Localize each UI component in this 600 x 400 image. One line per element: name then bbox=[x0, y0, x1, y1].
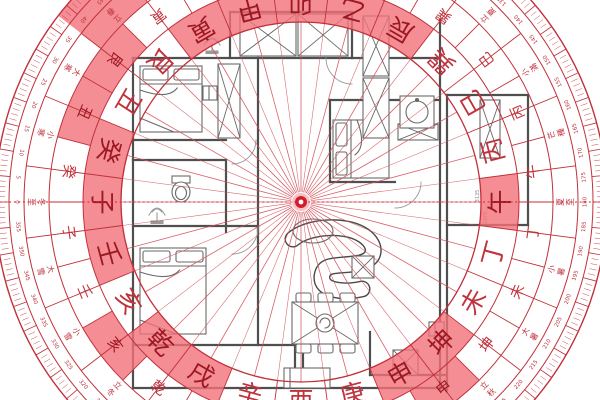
mountain-丁: 丁 bbox=[476, 238, 510, 270]
degree-label: 205 bbox=[554, 316, 564, 329]
degree-label: 340 bbox=[29, 293, 38, 305]
degree-label: 150 bbox=[542, 53, 553, 66]
mid-mountain-丙: 丙 bbox=[508, 102, 528, 122]
side-table bbox=[352, 256, 374, 278]
degree-label: 15 bbox=[22, 124, 30, 133]
degree-label: 200 bbox=[564, 293, 573, 305]
mid-mountain-巽: 巽 bbox=[433, 5, 454, 27]
mid-mountain-壬: 壬 bbox=[74, 282, 95, 302]
mountain-辛: 辛 bbox=[234, 377, 266, 400]
mid-mountain-癸: 癸 bbox=[59, 163, 78, 180]
solar-term-芒種: 芒 bbox=[545, 130, 557, 140]
door-swing bbox=[395, 182, 421, 208]
solar-term-小寒: 寒 bbox=[35, 127, 47, 137]
mountain-酉: 酉 bbox=[288, 387, 313, 400]
kitchen-sink bbox=[400, 96, 434, 128]
dining-table bbox=[292, 293, 358, 353]
mountain-庚: 庚 bbox=[337, 377, 369, 400]
degree-label: 145 bbox=[528, 32, 539, 44]
degree-label: 185 bbox=[581, 221, 588, 232]
shaft bbox=[363, 78, 389, 138]
degree-label: 330 bbox=[49, 338, 60, 351]
mountain-未: 未 bbox=[455, 283, 493, 319]
degree-label: 25 bbox=[39, 77, 48, 86]
mountain-卯: 卯 bbox=[288, 0, 313, 18]
degree-label: 210 bbox=[542, 338, 553, 351]
wardrobe bbox=[218, 64, 240, 138]
degree-label: 20 bbox=[29, 100, 37, 109]
mid-mountain-午: 午 bbox=[524, 163, 543, 180]
nightstand bbox=[203, 86, 217, 100]
door-swing bbox=[232, 228, 258, 254]
mountain-午: 午 bbox=[486, 189, 515, 214]
mid-mountain-子: 子 bbox=[59, 224, 78, 241]
degree-label: 220 bbox=[513, 379, 525, 391]
degree-label: 10 bbox=[17, 149, 24, 157]
degree-label: 30 bbox=[50, 55, 59, 64]
luopan-over-floorplan-diagram: 3135197505101520253035404550556065707580… bbox=[0, 0, 600, 400]
degree-label: 35 bbox=[63, 34, 72, 44]
mid-mountain-巳: 巳 bbox=[477, 48, 499, 69]
degree-label: 155 bbox=[554, 75, 564, 88]
degree-label: 135 bbox=[496, 0, 508, 7]
solar-term-芒種: 種 bbox=[555, 127, 567, 137]
degree-label: 140 bbox=[513, 13, 525, 25]
mid-mountain-寅: 寅 bbox=[147, 5, 169, 27]
degree-label: 325 bbox=[62, 359, 73, 371]
mid-mountain-未: 未 bbox=[507, 282, 528, 302]
toilet bbox=[172, 176, 190, 202]
degree-label: 5 bbox=[14, 175, 20, 180]
degree-label: 320 bbox=[77, 379, 89, 391]
compass-center-marker bbox=[292, 193, 310, 211]
bed-top-left bbox=[140, 66, 202, 132]
solar-term-大雪: 大 bbox=[45, 264, 57, 274]
degree-label: 345 bbox=[22, 270, 31, 282]
degree-label: 195 bbox=[572, 269, 581, 281]
mid-mountain-坤: 坤 bbox=[476, 334, 498, 356]
degree-label: 170 bbox=[577, 146, 585, 158]
degree-label: 160 bbox=[564, 98, 573, 110]
degree-label: 350 bbox=[17, 246, 25, 258]
door-swing bbox=[326, 58, 352, 84]
mid-mountain-乾: 乾 bbox=[147, 377, 169, 400]
degree-label: 215 bbox=[529, 359, 540, 371]
screenshot-root: 3135197505101520253035404550556065707580… bbox=[0, 0, 600, 400]
degree-label: 355 bbox=[14, 221, 21, 232]
degree-label: 175 bbox=[581, 171, 588, 182]
degree-label: 165 bbox=[571, 122, 580, 134]
degree-label: 335 bbox=[38, 316, 48, 329]
mid-mountain-丁: 丁 bbox=[525, 224, 543, 240]
degree-label: 190 bbox=[577, 245, 585, 257]
solar-term-大雪: 雪 bbox=[35, 267, 46, 277]
solar-term-小暑: 暑 bbox=[556, 267, 567, 277]
